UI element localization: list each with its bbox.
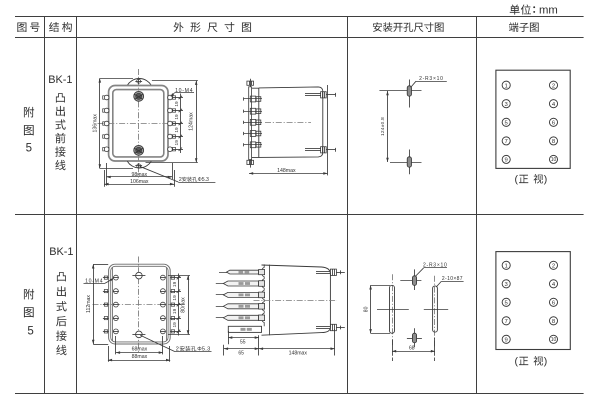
svg-text:1: 1 <box>505 263 508 269</box>
svg-text:106max: 106max <box>130 179 149 185</box>
svg-text:): ) <box>544 355 548 367</box>
svg-text:68max: 68max <box>132 347 148 353</box>
svg-text:BK-1: BK-1 <box>49 246 73 258</box>
svg-text:19: 19 <box>174 140 180 146</box>
svg-text:9: 9 <box>505 337 508 343</box>
svg-text:7: 7 <box>505 319 508 325</box>
svg-text:10: 10 <box>551 157 557 163</box>
svg-text:19: 19 <box>174 114 180 120</box>
svg-text:124±0.8: 124±0.8 <box>380 117 385 136</box>
svg-text:19: 19 <box>172 308 178 314</box>
svg-text:19: 19 <box>172 295 178 301</box>
svg-text:88max: 88max <box>132 354 148 360</box>
svg-text:19: 19 <box>172 281 178 287</box>
svg-text:5: 5 <box>27 325 33 337</box>
svg-text:19: 19 <box>174 101 180 107</box>
svg-text:65: 65 <box>238 351 244 357</box>
svg-text:19: 19 <box>172 322 178 328</box>
svg-text:2: 2 <box>176 347 179 353</box>
svg-text:10: 10 <box>551 337 557 343</box>
svg-text:124max: 124max <box>189 112 195 131</box>
svg-text:2: 2 <box>552 83 555 89</box>
svg-text:5: 5 <box>26 143 32 155</box>
svg-text:148max: 148max <box>289 351 308 357</box>
svg-text:(: ( <box>515 355 519 367</box>
svg-text:BK-1: BK-1 <box>48 74 72 86</box>
svg-text:Φ5.3: Φ5.3 <box>197 347 210 353</box>
svg-text:mm: mm <box>539 5 558 17</box>
svg-text:7: 7 <box>505 139 508 145</box>
svg-text:19: 19 <box>174 127 180 133</box>
svg-text:): ) <box>544 173 548 185</box>
svg-text:9: 9 <box>505 158 508 164</box>
svg-text:1: 1 <box>505 83 508 89</box>
svg-text:112max: 112max <box>86 295 92 313</box>
svg-text:Φ5.3: Φ5.3 <box>198 177 209 183</box>
svg-text:136max: 136max <box>92 114 98 133</box>
svg-text:80: 80 <box>363 306 369 312</box>
svg-text:55: 55 <box>240 339 246 345</box>
svg-text:2: 2 <box>179 177 182 183</box>
svg-text:(: ( <box>515 173 519 185</box>
svg-text:80max: 80max <box>181 297 187 313</box>
svg-text:98max: 98max <box>132 172 148 178</box>
svg-text:68: 68 <box>409 345 415 351</box>
svg-text:148max: 148max <box>277 168 296 174</box>
svg-text:2: 2 <box>552 263 555 269</box>
